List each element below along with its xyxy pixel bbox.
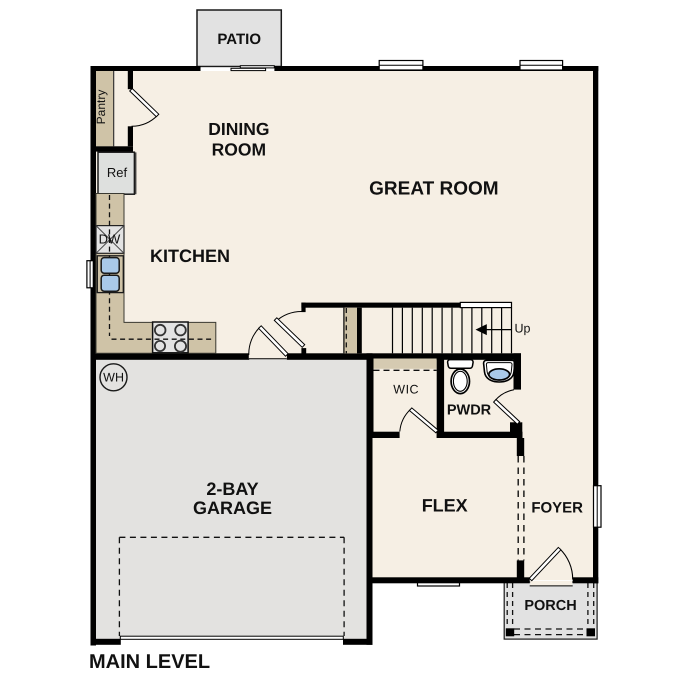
svg-text:DINING: DINING (208, 119, 269, 139)
svg-text:MAIN LEVEL: MAIN LEVEL (89, 651, 210, 673)
svg-text:WIC: WIC (393, 382, 419, 396)
svg-text:PATIO: PATIO (217, 31, 261, 48)
svg-text:KITCHEN: KITCHEN (150, 246, 230, 266)
svg-text:GARAGE: GARAGE (193, 498, 272, 518)
svg-text:FOYER: FOYER (531, 500, 583, 517)
svg-text:GREAT ROOM: GREAT ROOM (369, 179, 498, 200)
svg-text:PWDR: PWDR (447, 403, 492, 419)
svg-text:Ref: Ref (107, 165, 128, 180)
svg-text:2-BAY: 2-BAY (206, 479, 258, 499)
svg-text:Up: Up (515, 321, 531, 335)
svg-text:Pantry: Pantry (94, 90, 108, 125)
svg-text:FLEX: FLEX (422, 495, 468, 515)
svg-text:ROOM: ROOM (212, 140, 266, 160)
svg-text:PORCH: PORCH (524, 598, 576, 614)
svg-text:WH: WH (103, 371, 124, 385)
